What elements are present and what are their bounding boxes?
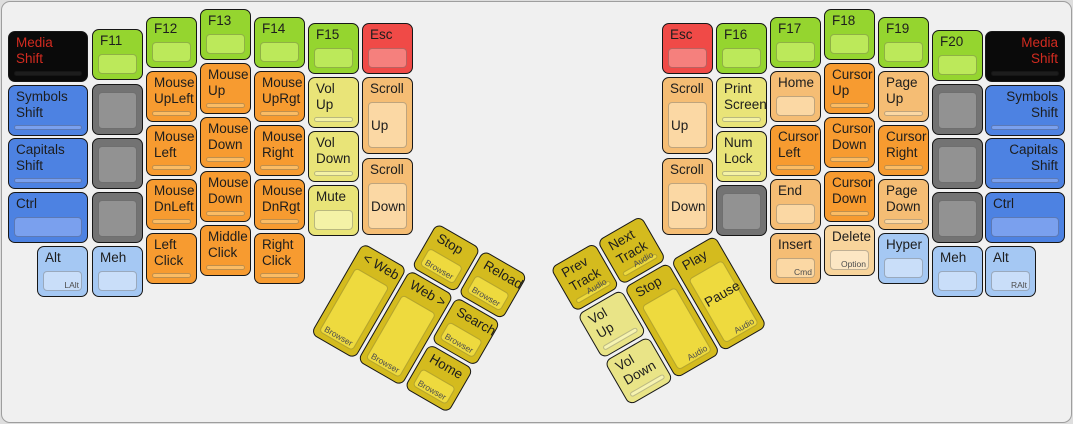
key-label: Scroll: [370, 81, 406, 97]
mute-key[interactable]: Mute: [308, 185, 359, 236]
keycap-surface: [722, 117, 761, 122]
cursor-right-key[interactable]: CursorRight: [878, 125, 929, 176]
print-screen-key[interactable]: PrintScreen: [716, 77, 767, 128]
key-label: Esc: [670, 27, 706, 43]
key-label: F15: [316, 27, 352, 43]
keycap-surface: [98, 54, 137, 74]
end-key[interactable]: End: [770, 179, 821, 230]
key-label: Delete: [832, 229, 868, 245]
key-label: SymbolsShift: [16, 89, 81, 120]
keycap-surface: [830, 103, 869, 108]
key-label: NumLock: [724, 135, 760, 166]
key-label: LeftClick: [154, 237, 190, 268]
keycap-surface: [314, 210, 353, 230]
blank-left-1-key[interactable]: [92, 84, 143, 135]
num-lock-key[interactable]: NumLock: [716, 131, 767, 182]
cursor-down-1-key[interactable]: CursorDown: [824, 117, 875, 168]
keycap-surface: [152, 165, 191, 170]
scroll-up-left-key[interactable]: ScrollUp: [362, 77, 413, 154]
keycap-surface: [884, 111, 923, 116]
mouse-dnrgt-key[interactable]: MouseDnRgt: [254, 179, 305, 230]
keycap-surface: [260, 42, 299, 62]
keycap-surface: [776, 96, 815, 116]
keycap-surface: [938, 55, 977, 75]
left-click-key[interactable]: LeftClick: [146, 233, 197, 284]
vol-down-left-key[interactable]: VolDown: [308, 131, 359, 182]
blank-right-1-key[interactable]: [716, 185, 767, 236]
key-label: Ctrl: [16, 196, 81, 212]
vol-up-left-key[interactable]: VolUp: [308, 77, 359, 128]
key-label: VolUp: [316, 81, 352, 112]
keycap-surface: [991, 125, 1059, 130]
key-label: F12: [154, 21, 190, 37]
media-shift-right-key[interactable]: MediaShift: [985, 31, 1065, 82]
keyboard-layout-canvas: MediaShiftSymbolsShiftCapitalsShiftCtrlA…: [0, 0, 1073, 424]
key-label: F11: [100, 33, 136, 49]
f16-key[interactable]: F16: [716, 23, 767, 74]
cursor-left-key[interactable]: CursorLeft: [770, 125, 821, 176]
mouse-up-key[interactable]: MouseUp: [200, 63, 251, 114]
blank-right-2-key[interactable]: [932, 84, 983, 135]
f11-key[interactable]: F11: [92, 29, 143, 80]
keycap-surface: [14, 217, 82, 237]
blank-left-2-key[interactable]: [92, 138, 143, 189]
page-up-key[interactable]: PageUp: [878, 71, 929, 122]
key-label: End: [778, 183, 814, 199]
key-label: VolDown: [316, 135, 352, 166]
key-label: F20: [940, 34, 976, 50]
blank-right-4-key[interactable]: [932, 192, 983, 243]
keycap-surface: [668, 48, 707, 68]
key-label: CursorDown: [832, 121, 868, 152]
key-label: Insert: [778, 237, 814, 253]
capitals-shift-right-key[interactable]: CapitalsShift: [985, 138, 1065, 189]
keycap-surface: [938, 146, 977, 183]
key-label: F17: [778, 21, 814, 37]
keycap-surface: [98, 146, 137, 183]
ctrl-right-key[interactable]: Ctrl: [985, 192, 1065, 243]
key-label: CursorDown: [832, 175, 868, 206]
key-label: F16: [724, 27, 760, 43]
keycap-surface: [14, 125, 82, 130]
keycap-surface: [776, 165, 815, 170]
scroll-up-right-key[interactable]: ScrollUp: [662, 77, 713, 154]
keycap-surface: [98, 271, 137, 291]
meh-right-key[interactable]: Meh: [932, 246, 983, 297]
delete-key[interactable]: DeleteOption: [824, 225, 875, 276]
keycap-surface: [991, 178, 1059, 183]
keycap-surface: [206, 103, 245, 108]
mouse-right-key[interactable]: MouseRight: [254, 125, 305, 176]
key-secondary-label: Up: [671, 118, 688, 133]
keycap-surface: [98, 200, 137, 237]
mouse-down-1-key[interactable]: MouseDown: [200, 117, 251, 168]
key-label: CursorLeft: [778, 129, 814, 160]
key-label: Scroll: [670, 162, 706, 178]
key-label: SymbolsShift: [993, 89, 1058, 120]
keyboard-board: MediaShiftSymbolsShiftCapitalsShiftCtrlA…: [0, 0, 1073, 424]
f19-key[interactable]: F19: [878, 17, 929, 68]
keycap-surface: [884, 165, 923, 170]
media-shift-left-key[interactable]: MediaShift: [8, 31, 88, 82]
keycap-surface: [206, 265, 245, 270]
key-label: MediaShift: [16, 35, 81, 66]
capitals-shift-left-key[interactable]: CapitalsShift: [8, 138, 88, 189]
keycap-surface: [152, 219, 191, 224]
keycap-surface: [722, 193, 761, 230]
keycap-surface: [260, 165, 299, 170]
mouse-down-2-key[interactable]: MouseDown: [200, 171, 251, 222]
keycap-surface: [260, 219, 299, 224]
key-label: Scroll: [670, 81, 706, 97]
key-label: Meh: [940, 250, 976, 266]
keycap-surface: [722, 171, 761, 176]
key-label: F18: [832, 13, 868, 29]
keycap-surface: [368, 48, 407, 68]
keycap-surface: [152, 111, 191, 116]
key-sublabel: Cmd: [794, 267, 812, 277]
key-label: CapitalsShift: [16, 142, 81, 173]
f12-key[interactable]: F12: [146, 17, 197, 68]
keycap-surface: [206, 211, 245, 216]
keycap-surface: [884, 258, 923, 278]
key-label: PrintScreen: [724, 81, 760, 112]
key-label: RightClick: [262, 237, 298, 268]
f18-key[interactable]: F18: [824, 9, 875, 60]
keycap-surface: [884, 219, 923, 224]
keycap-surface: [206, 34, 245, 54]
insert-key[interactable]: InsertCmd: [770, 233, 821, 284]
key-label: CursorUp: [832, 67, 868, 98]
f17-key[interactable]: F17: [770, 17, 821, 68]
key-label: Scroll: [370, 162, 406, 178]
mouse-upleft-key[interactable]: MouseUpLeft: [146, 71, 197, 122]
mouse-uprgt-key[interactable]: MouseUpRgt: [254, 71, 305, 122]
symbols-shift-right-key[interactable]: SymbolsShift: [985, 85, 1065, 136]
key-label: Mute: [316, 189, 352, 205]
key-label: MouseUp: [208, 67, 244, 98]
keycap-surface: [776, 204, 815, 224]
key-label: F13: [208, 13, 244, 29]
keycap-surface: [938, 92, 977, 129]
key-label: MouseUpLeft: [154, 75, 190, 106]
keycap-surface: [722, 48, 761, 68]
f20-key[interactable]: F20: [932, 30, 983, 81]
key-label: Meh: [100, 250, 136, 266]
keycap-surface: [830, 34, 869, 54]
hyper-key[interactable]: Hyper: [878, 233, 929, 284]
keycap-surface: [938, 271, 977, 291]
key-label: MouseDnLeft: [154, 183, 190, 214]
home-key[interactable]: Home: [770, 71, 821, 122]
key-label: MouseDown: [208, 175, 244, 206]
keycap-surface: [884, 42, 923, 62]
key-label: Hyper: [886, 237, 922, 253]
cursor-down-2-key[interactable]: CursorDown: [824, 171, 875, 222]
blank-left-3-key[interactable]: [92, 192, 143, 243]
esc-right-key[interactable]: Esc: [662, 23, 713, 74]
key-label: MouseDnRgt: [262, 183, 298, 214]
keycap-surface: [776, 42, 815, 62]
keycap-surface: [14, 178, 82, 183]
esc-left-key[interactable]: Esc: [362, 23, 413, 74]
key-label: PageUp: [886, 75, 922, 106]
alt-right-key[interactable]: AltRAlt: [985, 246, 1036, 297]
alt-left-key[interactable]: AltLAlt: [37, 246, 88, 297]
symbols-shift-left-key[interactable]: SymbolsShift: [8, 85, 88, 136]
key-label: CapitalsShift: [993, 142, 1058, 173]
key-sublabel: Option: [841, 259, 866, 269]
key-secondary-label: Up: [371, 118, 388, 133]
keycap-surface: [991, 71, 1059, 76]
keycap-surface: [98, 92, 137, 129]
key-label: MediaShift: [993, 35, 1058, 66]
keycap-surface: [830, 157, 869, 162]
keycap-surface: [14, 71, 82, 76]
key-label: MouseUpRgt: [262, 75, 298, 106]
f15-key[interactable]: F15: [308, 23, 359, 74]
f14-key[interactable]: F14: [254, 17, 305, 68]
keycap-surface: [152, 42, 191, 62]
keycap-surface: [830, 211, 869, 216]
key-label: CursorRight: [886, 129, 922, 160]
key-label: MouseLeft: [154, 129, 190, 160]
middle-click-key[interactable]: MiddleClick: [200, 225, 251, 276]
keycap-surface: [938, 200, 977, 237]
f13-key[interactable]: F13: [200, 9, 251, 60]
key-label: PageDown: [886, 183, 922, 214]
keycap-surface: [314, 48, 353, 68]
key-label: Alt: [45, 250, 81, 266]
keycap-surface: [260, 273, 299, 278]
key-label: MiddleClick: [208, 229, 244, 260]
key-sublabel: LAlt: [64, 280, 79, 290]
keycap-surface: [206, 157, 245, 162]
key-label: Home: [778, 75, 814, 91]
cursor-up-key[interactable]: CursorUp: [824, 63, 875, 114]
mouse-left-key[interactable]: MouseLeft: [146, 125, 197, 176]
keycap-surface: [260, 111, 299, 116]
mouse-dnleft-key[interactable]: MouseDnLeft: [146, 179, 197, 230]
key-label: Ctrl: [993, 196, 1058, 212]
keycap-surface: [314, 171, 353, 176]
keycap-surface: [314, 117, 353, 122]
blank-right-3-key[interactable]: [932, 138, 983, 189]
key-label: Alt: [993, 250, 1029, 266]
meh-left-key[interactable]: Meh: [92, 246, 143, 297]
keycap-surface: [152, 273, 191, 278]
keycap-surface: [991, 217, 1059, 237]
key-label: F14: [262, 21, 298, 37]
ctrl-left-key[interactable]: Ctrl: [8, 192, 88, 243]
key-label: Esc: [370, 27, 406, 43]
key-sublabel: RAlt: [1011, 280, 1027, 290]
key-label: F19: [886, 21, 922, 37]
key-label: MouseDown: [208, 121, 244, 152]
right-click-key[interactable]: RightClick: [254, 233, 305, 284]
key-label: MouseRight: [262, 129, 298, 160]
page-down-key[interactable]: PageDown: [878, 179, 929, 230]
